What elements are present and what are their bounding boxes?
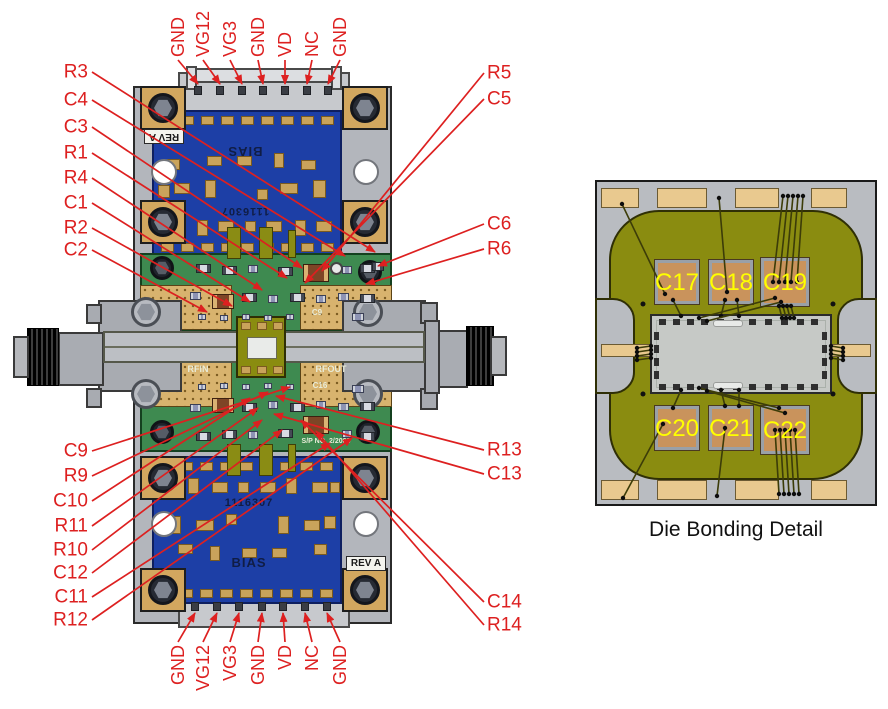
callout-label: C11	[55, 587, 88, 608]
callout-label: NC	[302, 645, 322, 671]
callout-line	[203, 60, 220, 84]
callout-label: R1	[64, 143, 88, 164]
callout-label: C5	[487, 89, 511, 110]
callout-label: R13	[487, 440, 522, 461]
callout-line	[178, 613, 195, 642]
callout-label: R14	[487, 615, 522, 636]
callout-label: VD	[275, 32, 295, 57]
callout-label: GND	[330, 17, 350, 57]
callout-label: C3	[64, 117, 88, 138]
callout-label: GND	[168, 17, 188, 57]
callout-line	[305, 613, 312, 642]
callout-line	[230, 60, 242, 84]
callout-label: R11	[55, 516, 88, 537]
callout-line	[92, 398, 250, 501]
callout-label: R10	[53, 540, 88, 561]
callout-label: C1	[64, 193, 88, 214]
callout-label: C4	[64, 90, 89, 111]
callout-line	[307, 60, 312, 84]
callout-label: R6	[487, 239, 511, 260]
callout-line	[92, 228, 232, 306]
callout-line	[258, 60, 263, 84]
callout-label: C13	[487, 464, 522, 485]
callout-line	[258, 613, 262, 642]
callout-line	[366, 249, 484, 284]
callout-line	[92, 443, 330, 597]
callout-line	[305, 99, 484, 283]
callout-label: C12	[53, 563, 88, 584]
callout-overlay: R3C4C3R1R4C1R2C2C9R9C10R11R10C12C11R12R5…	[0, 0, 888, 709]
callout-label: GND	[248, 17, 268, 57]
callout-line	[328, 60, 340, 84]
callout-label: VD	[275, 645, 295, 670]
callout-line	[92, 438, 352, 620]
callout-label: R3	[64, 62, 88, 83]
callout-line	[203, 613, 217, 642]
callout-line	[378, 224, 484, 266]
callout-label: VG12	[193, 11, 213, 57]
callout-label: C9	[64, 441, 88, 462]
callout-label: VG3	[220, 645, 240, 681]
callout-label: R4	[64, 168, 89, 189]
callout-label: VG12	[193, 645, 213, 691]
callout-label: GND	[330, 645, 350, 685]
callout-label: GND	[248, 645, 268, 685]
callout-line	[92, 178, 262, 290]
callout-line	[327, 613, 340, 642]
callout-line	[230, 613, 239, 642]
callout-line	[283, 613, 285, 642]
eval-board-figure: Die Bonding Detail 1116307BIAS1116307BIA…	[0, 0, 888, 709]
callout-label: R2	[64, 218, 88, 239]
callout-line	[316, 431, 484, 625]
callout-line	[92, 153, 287, 278]
callout-line	[92, 430, 282, 573]
callout-label: R12	[53, 610, 88, 631]
callout-label: C2	[64, 240, 88, 261]
callout-label: C6	[487, 214, 511, 235]
callout-line	[92, 72, 375, 252]
callout-label: R9	[64, 466, 88, 487]
callout-label: C10	[53, 491, 88, 512]
callout-label: R5	[487, 63, 511, 84]
callout-label: GND	[168, 645, 188, 685]
callout-label: NC	[302, 31, 322, 57]
callout-label: C14	[487, 592, 522, 613]
callout-line	[178, 60, 198, 84]
callout-label: VG3	[220, 21, 240, 57]
